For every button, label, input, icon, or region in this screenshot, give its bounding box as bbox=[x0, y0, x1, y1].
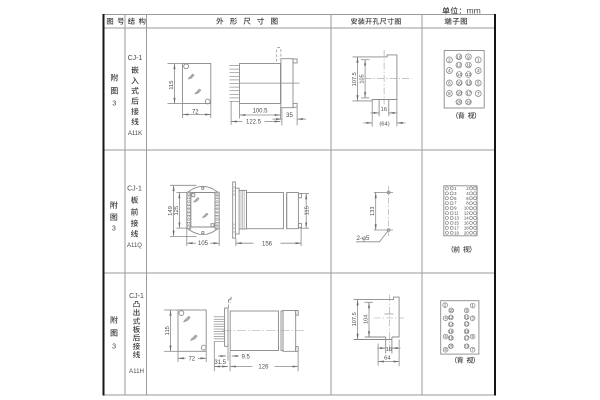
svg-text:12: 12 bbox=[449, 315, 454, 320]
svg-text:72: 72 bbox=[192, 109, 199, 115]
svg-text:19: 19 bbox=[454, 230, 459, 235]
svg-text:20: 20 bbox=[449, 344, 454, 349]
svg-text:10: 10 bbox=[456, 54, 462, 59]
svg-text:3: 3 bbox=[477, 68, 480, 73]
svg-text:7: 7 bbox=[477, 91, 480, 96]
svg-text:3: 3 bbox=[112, 224, 116, 233]
svg-text:20: 20 bbox=[464, 230, 469, 235]
svg-text:64: 64 bbox=[384, 356, 391, 362]
svg-text:19: 19 bbox=[466, 100, 472, 105]
svg-text:2-φ5: 2-φ5 bbox=[357, 235, 371, 242]
svg-text:156: 156 bbox=[262, 241, 273, 247]
svg-text:17: 17 bbox=[466, 91, 472, 96]
svg-text:14: 14 bbox=[457, 72, 463, 77]
svg-text:14: 14 bbox=[449, 322, 454, 327]
svg-text:15: 15 bbox=[466, 80, 472, 85]
svg-text:104: 104 bbox=[363, 315, 369, 324]
svg-text:11: 11 bbox=[466, 63, 471, 68]
svg-text:100.5: 100.5 bbox=[252, 109, 268, 115]
svg-text:A11Q: A11Q bbox=[127, 243, 142, 249]
svg-text:19: 19 bbox=[464, 344, 469, 349]
svg-text:18: 18 bbox=[449, 335, 454, 340]
svg-text:16: 16 bbox=[449, 329, 454, 334]
svg-text:115: 115 bbox=[169, 80, 175, 89]
svg-text:115: 115 bbox=[304, 206, 310, 215]
svg-text:15: 15 bbox=[464, 329, 469, 334]
svg-text:3: 3 bbox=[112, 99, 116, 108]
svg-text:72: 72 bbox=[188, 356, 195, 362]
svg-text:6: 6 bbox=[448, 81, 451, 86]
svg-text:105: 105 bbox=[198, 241, 209, 247]
svg-text:13: 13 bbox=[464, 321, 469, 326]
svg-text:5: 5 bbox=[477, 81, 480, 86]
svg-text:133: 133 bbox=[370, 207, 376, 216]
svg-text:20: 20 bbox=[456, 100, 462, 105]
svg-text:11: 11 bbox=[464, 314, 469, 319]
svg-text:125: 125 bbox=[174, 206, 180, 216]
svg-text:31.5: 31.5 bbox=[214, 360, 226, 366]
svg-text:CJ-1: CJ-1 bbox=[128, 55, 143, 62]
svg-text:A11H: A11H bbox=[129, 368, 144, 375]
svg-text:35: 35 bbox=[286, 113, 293, 119]
svg-text:16: 16 bbox=[457, 80, 463, 85]
svg-text:A11K: A11K bbox=[128, 131, 142, 137]
svg-text:18: 18 bbox=[457, 91, 463, 96]
svg-text:9: 9 bbox=[467, 54, 470, 59]
svg-text:10: 10 bbox=[449, 308, 454, 313]
svg-text:8: 8 bbox=[448, 91, 451, 96]
svg-text:3: 3 bbox=[112, 341, 116, 350]
svg-text:9.5: 9.5 bbox=[242, 354, 251, 360]
svg-text:2: 2 bbox=[448, 57, 451, 62]
svg-text:16: 16 bbox=[386, 347, 392, 353]
svg-text:115: 115 bbox=[165, 326, 171, 335]
svg-text:105: 105 bbox=[360, 74, 366, 83]
svg-text:107.5: 107.5 bbox=[352, 312, 358, 326]
svg-text:16: 16 bbox=[381, 107, 387, 113]
svg-text:126: 126 bbox=[258, 365, 269, 371]
svg-text:12: 12 bbox=[456, 63, 462, 68]
svg-text:(64): (64) bbox=[379, 121, 389, 127]
svg-text:122.5: 122.5 bbox=[246, 120, 262, 126]
svg-text:1: 1 bbox=[477, 57, 480, 62]
svg-text:13: 13 bbox=[466, 72, 472, 77]
svg-text:17: 17 bbox=[464, 335, 469, 340]
svg-text:CJ-1: CJ-1 bbox=[127, 185, 142, 192]
svg-text:4: 4 bbox=[448, 68, 451, 73]
svg-text:CJ-1: CJ-1 bbox=[129, 293, 144, 300]
svg-text:107.5: 107.5 bbox=[352, 72, 358, 86]
